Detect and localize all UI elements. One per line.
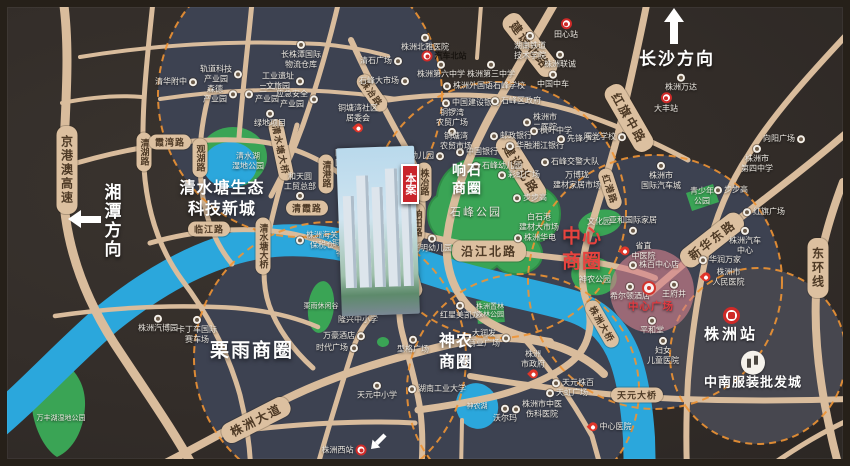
- road-label: 东环线: [808, 238, 829, 298]
- poi-marker-icon: [498, 171, 506, 179]
- poi-marker-icon: [699, 256, 707, 264]
- poi-text: 平和堂: [640, 326, 664, 336]
- poi-text: 大丰站: [654, 104, 678, 114]
- map-poi: 三一产业园: [245, 84, 279, 103]
- poi-text: 株洲市第四中学: [741, 154, 773, 173]
- poi-text: 步步高: [523, 193, 547, 203]
- poi-marker-icon: [670, 281, 678, 289]
- map-poi: 株洲市政府: [521, 349, 545, 378]
- poi-text: 中南服装批发城: [704, 376, 802, 392]
- poi-marker-icon: [193, 316, 201, 324]
- road-label: 清霞路: [286, 201, 328, 216]
- map-poi: 石峰大市场: [359, 76, 409, 86]
- poi-text: 汽车北站: [435, 51, 467, 61]
- poi-marker-icon: [490, 132, 498, 140]
- poi-text: 湖南工业大学: [418, 384, 466, 394]
- map-poi: 株洲万达: [665, 74, 697, 93]
- road-label: 清港路: [319, 155, 334, 194]
- road-label: 株洲大道: [218, 394, 293, 446]
- poi-marker-icon: [659, 337, 667, 345]
- poi-marker-icon: [657, 162, 665, 170]
- poi-marker-icon: [556, 51, 564, 59]
- poi-text: 光明幼儿园: [412, 244, 452, 254]
- poi-text: 和天圆工贸总部: [284, 172, 316, 191]
- map-poi: 神农公园: [579, 275, 611, 285]
- map-poi: 株洲市人民医院: [702, 267, 745, 286]
- map-poi: 青少年公园: [690, 186, 714, 205]
- map-poi: 天虹广场: [546, 388, 588, 398]
- poi-text: 铜塘湾社区居委会: [338, 103, 378, 122]
- poi-text: 青少年公园: [690, 186, 714, 205]
- poi-text: 彩虹广场: [508, 170, 540, 180]
- road-label: 清水塘大桥: [256, 218, 271, 275]
- poi-text: 石峰公园: [450, 205, 502, 218]
- map-poi: 中国中车: [537, 71, 569, 90]
- poi-text: 神农商圈: [439, 331, 473, 373]
- poi-marker-icon: [296, 236, 304, 244]
- poi-marker-icon: [296, 77, 304, 85]
- map-poi: 株洲华电: [514, 233, 556, 243]
- map-poi: 光明幼儿园: [412, 235, 452, 254]
- railway-station-icon: [561, 18, 572, 29]
- poi-text: 应急安全产业园: [276, 89, 308, 108]
- map-poi: 株洲第六中学: [417, 61, 465, 80]
- shopping-mall-icon: [741, 351, 765, 375]
- poi-marker-icon: [506, 142, 514, 150]
- poi-marker-icon: [350, 344, 358, 352]
- map-poi: 天元株百: [552, 378, 594, 388]
- poi-text: 石峰幼儿园: [482, 161, 522, 171]
- poi-text: 株洲联诚: [544, 60, 576, 70]
- hospital-pin-icon: [700, 271, 713, 284]
- map-poi: 省直中医院: [621, 241, 656, 260]
- poi-marker-icon: [677, 74, 685, 82]
- map-poi: 中南服装批发城: [704, 351, 802, 392]
- building-tower: [401, 196, 414, 286]
- poi-marker-icon: [310, 95, 318, 103]
- poi-marker-icon: [797, 135, 805, 143]
- map-poi: 清华附中: [155, 77, 197, 87]
- poi-text: 石峰大市场: [359, 76, 399, 86]
- map-poi: 株洲汽博园: [138, 315, 178, 334]
- map-poi: 邮政银行: [490, 131, 532, 141]
- poi-text: 红星美凯龙: [440, 311, 480, 321]
- building-tower: [371, 187, 385, 287]
- poi-text: 株洲市人民医院: [713, 267, 745, 286]
- poi-marker-icon: [526, 32, 534, 40]
- poi-text: 天元中小学: [357, 391, 397, 401]
- poi-marker-icon: [229, 90, 237, 98]
- poi-marker-icon: [513, 194, 521, 202]
- map-labels-layer: 京港澳高速清湖路霞湾路观湖路临江路清水塘大桥清水塘大桥清霞路清港路株冶路株冶路响…: [0, 0, 850, 466]
- poi-text: 省直中医院: [632, 241, 656, 260]
- poi-marker-icon: [501, 405, 509, 413]
- poi-text: 栗雨商圈: [210, 339, 294, 364]
- poi-text: 石峰交警大队: [551, 157, 599, 167]
- poi-marker-icon: [401, 77, 409, 85]
- poi-text: 华润万家: [709, 255, 741, 265]
- map-poi: 神农商圈: [439, 331, 473, 373]
- map-poi: 妇女儿童医院: [647, 337, 679, 365]
- map-poi: 田心站: [554, 18, 578, 40]
- map-poi: 中心医院: [589, 422, 632, 432]
- poi-text: 轨道科技产业园: [200, 64, 232, 83]
- poi-text: 株洲置林森林公园: [476, 303, 504, 320]
- poi-marker-icon: [245, 90, 253, 98]
- poi-text: 清华附中: [155, 77, 187, 87]
- map-poi: 株百中心店: [629, 260, 679, 270]
- poi-marker-icon: [552, 379, 560, 387]
- building-tower: [356, 175, 372, 287]
- poi-text: 邮政银行: [500, 131, 532, 141]
- poi-text: 株洲汽博园: [138, 324, 178, 334]
- map-poi: 华融湘江银行: [506, 141, 564, 151]
- map-poi: 栗雨商圈: [210, 339, 294, 364]
- poi-text: 株百中心店: [639, 260, 679, 270]
- map-poi: 平和堂: [640, 317, 664, 336]
- poi-text: 株洲外国语石峰学校: [453, 81, 525, 91]
- poi-marker-icon: [753, 145, 761, 153]
- map-poi: 中心广场: [628, 301, 674, 314]
- poi-marker-icon: [557, 135, 565, 143]
- poi-text: 王府井: [662, 290, 686, 300]
- poi-text: 株洲万达: [665, 83, 697, 93]
- road-label: 临江路: [188, 222, 230, 237]
- map-poi: 神农湖: [467, 402, 488, 410]
- poi-marker-icon: [296, 192, 304, 200]
- hospital-pin-icon: [587, 421, 600, 434]
- center-plaza-target-icon: [642, 281, 656, 295]
- map-poi: 绿地项目: [254, 110, 286, 129]
- poi-text: 清石广场: [360, 56, 392, 66]
- map-poi: 彩虹广场: [498, 170, 540, 180]
- map-poi: 栗雨休闲谷: [304, 302, 339, 310]
- map-poi: 铜塘湾农贸市场: [440, 131, 472, 150]
- map-poi: 应急安全产业园: [276, 89, 318, 108]
- poi-text: 神农湖: [467, 402, 488, 410]
- poi-marker-icon: [502, 334, 510, 342]
- map-poi: 步步高: [513, 193, 547, 203]
- map-poi: 株洲置林森林公园: [476, 303, 504, 320]
- poi-text: 清水塘生态科技新城: [179, 178, 264, 220]
- poi-text: 万博珑建材家居市场: [553, 170, 601, 189]
- poi-text: 万豪酒店: [323, 331, 355, 341]
- poi-marker-icon: [436, 152, 444, 160]
- map-poi: 长株潭国际物流仓库: [281, 41, 321, 69]
- poi-text: 株洲汽车中心: [729, 236, 761, 255]
- map-poi: 时代广场: [316, 343, 358, 353]
- poi-text: 神农公园: [579, 275, 611, 285]
- poi-text: 绿地项目: [254, 119, 286, 129]
- poi-marker-icon: [530, 127, 538, 135]
- map-poi: 万博珑建材家居市场: [553, 170, 601, 189]
- poi-marker-icon: [456, 302, 464, 310]
- poi-marker-icon: [189, 78, 197, 86]
- poi-marker-icon: [428, 235, 436, 243]
- poi-marker-icon: [443, 82, 451, 90]
- road-label: 京港澳高速: [57, 126, 78, 214]
- road-label: 株洲大桥: [583, 298, 622, 351]
- poi-marker-icon: [629, 261, 637, 269]
- road-label: 沿江北路: [452, 241, 526, 262]
- poi-marker-icon: [541, 158, 549, 166]
- main-station-icon: [722, 307, 739, 324]
- map-poi: 铜塘湾社区居委会: [338, 103, 378, 132]
- poi-marker-icon: [523, 118, 531, 126]
- map-poi: 中心商圈: [562, 224, 602, 273]
- poi-text: 天元株百: [562, 378, 594, 388]
- poi-text: 株洲第三中学: [467, 70, 515, 80]
- poi-marker-icon: [154, 315, 162, 323]
- poi-marker-icon: [618, 133, 626, 141]
- poi-text: 中心医院: [600, 422, 632, 432]
- map-poi: 株洲外国语石峰学校: [443, 81, 525, 91]
- poi-text: 中国中车: [537, 80, 569, 90]
- poi-text: 红旗广场: [753, 207, 785, 217]
- map-poi: 白石港建材大市场: [519, 212, 559, 231]
- poi-marker-icon: [546, 389, 554, 397]
- poi-text: 步步高: [724, 185, 748, 195]
- poi-text: 曙光学校: [584, 132, 616, 142]
- poi-marker-icon: [234, 70, 242, 78]
- map-poi: 响石商圈: [452, 162, 482, 198]
- poi-text: 株洲市国际汽车城: [641, 171, 681, 190]
- road-label: 天元大桥: [611, 388, 663, 403]
- map-poi: 株洲第三中学: [467, 61, 515, 80]
- building-tower: [343, 196, 357, 288]
- poi-text: 天虹广场: [556, 388, 588, 398]
- map-poi: 森德产业园: [203, 84, 237, 103]
- map-poi: 大润发商业广场: [468, 328, 510, 347]
- poi-marker-icon: [442, 99, 450, 107]
- map-poi: 湖南工业大学: [408, 384, 466, 394]
- poi-marker-icon: [266, 110, 274, 118]
- map-poi: 天元中小学: [357, 382, 397, 401]
- hospital-pin-icon: [352, 122, 365, 135]
- map-poi: 步步高: [714, 185, 748, 195]
- building-tower: [385, 168, 401, 286]
- zhuzhou-location-map: 本案 长沙方向 湘潭方向 京港澳高速清湖路霞湾路观湖路临江路清水塘大桥清水塘大桥…: [0, 0, 850, 466]
- poi-text: 长株潭国际物流仓库: [281, 50, 321, 69]
- poi-marker-icon: [549, 71, 557, 79]
- poi-text: 万丰湖湿地公园: [37, 414, 86, 422]
- poi-text: 亚和国际家居: [609, 216, 657, 226]
- poi-text: 白石港建材大市场: [519, 212, 559, 231]
- poi-marker-icon: [409, 336, 417, 344]
- poi-marker-icon: [741, 227, 749, 235]
- map-poi: 万豪酒店: [323, 331, 365, 341]
- poi-marker-icon: [437, 61, 445, 69]
- map-poi: 向阳广场: [763, 134, 805, 144]
- poi-marker-icon: [626, 283, 634, 291]
- map-poi: 石峰公园: [450, 205, 502, 218]
- poi-text: 田心站: [554, 30, 578, 40]
- map-poi: 株洲汽车中心: [729, 227, 761, 255]
- map-poi: 红星美凯龙: [440, 302, 480, 321]
- map-poi: 华润万家: [699, 255, 741, 265]
- poi-marker-icon: [487, 61, 495, 69]
- hospital-pin-icon: [527, 368, 540, 381]
- poi-text: 株洲华电: [524, 233, 556, 243]
- map-poi: 型格广场: [397, 336, 429, 355]
- poi-text: 湖南铁道技术学院: [514, 41, 546, 60]
- map-poi: 红旗广场: [743, 207, 785, 217]
- map-poi: 轨道科技产业园: [200, 64, 242, 83]
- map-poi: 万丰湖湿地公园: [37, 414, 86, 422]
- map-poi: 大丰站: [654, 92, 678, 114]
- poi-marker-icon: [648, 317, 656, 325]
- poi-marker-icon: [629, 226, 637, 234]
- poi-marker-icon: [421, 34, 429, 42]
- poi-marker-icon: [491, 97, 499, 105]
- railway-station-icon: [356, 445, 367, 456]
- poi-text: 株洲市政府: [521, 349, 545, 368]
- poi-marker-icon: [408, 385, 416, 393]
- poi-marker-icon: [297, 41, 305, 49]
- poi-marker-icon: [514, 234, 522, 242]
- poi-text: 栗雨休闲谷: [304, 302, 339, 310]
- poi-text: 铜锣湾农贸广场: [436, 108, 468, 127]
- map-poi: 清水湖湿地公园: [232, 151, 264, 170]
- road-label: 观湖路: [193, 139, 208, 178]
- poi-text: 株洲市中医伤科医院: [522, 399, 562, 418]
- poi-text: 时代广场: [316, 343, 348, 353]
- map-poi: 株洲市中医伤科医院: [512, 399, 562, 418]
- map-poi: 株洲市国际汽车城: [641, 162, 681, 190]
- poi-text: 株洲第六中学: [417, 70, 465, 80]
- map-poi: 石峰交警大队: [541, 157, 599, 167]
- map-poi: 曙光学校: [584, 132, 626, 142]
- map-poi: 株洲市第四中学: [741, 145, 773, 173]
- poi-text: 向阳广场: [763, 134, 795, 144]
- map-poi: 清石广场: [360, 56, 402, 66]
- poi-marker-icon: [373, 382, 381, 390]
- railway-station-icon: [661, 92, 672, 103]
- site-tag: 本案: [401, 164, 419, 204]
- map-poi: 湖南铁道技术学院: [514, 32, 546, 60]
- map-poi: 清水塘生态科技新城: [179, 178, 264, 220]
- hospital-pin-icon: [619, 245, 632, 258]
- map-poi: 亚和国际家居: [609, 216, 657, 235]
- poi-text: 清水湖湿地公园: [232, 151, 264, 170]
- poi-text: 中心商圈: [562, 224, 602, 273]
- map-poi: 王府井: [662, 281, 686, 300]
- poi-text: 株洲站: [704, 325, 758, 343]
- poi-text: 中心广场: [628, 301, 674, 314]
- map-poi: 株洲西站: [322, 445, 367, 456]
- map-poi: 和天圆工贸总部: [284, 172, 316, 200]
- poi-marker-icon: [714, 186, 722, 194]
- poi-marker-icon: [743, 208, 751, 216]
- poi-marker-icon: [512, 405, 520, 413]
- map-poi: 石峰区政府: [491, 96, 541, 106]
- poi-text: 型格广场: [397, 345, 429, 355]
- map-poi: [642, 281, 656, 295]
- road-label: 霞湾路: [149, 135, 191, 150]
- poi-text: 株洲西站: [322, 445, 354, 455]
- poi-marker-icon: [394, 57, 402, 65]
- map-poi: 株洲联诚: [544, 51, 576, 70]
- map-poi: 株洲北雅医院: [401, 34, 449, 53]
- map-poi: 株洲站: [704, 307, 758, 343]
- road-label: 红旗中路: [601, 81, 656, 156]
- poi-text: 妇女儿童医院: [647, 346, 679, 365]
- poi-text: 铜塘湾农贸市场: [440, 131, 472, 150]
- poi-text: 石峰区政府: [501, 96, 541, 106]
- poi-text: 森德产业园: [203, 84, 227, 103]
- poi-text: 响石商圈: [452, 162, 482, 198]
- poi-marker-icon: [357, 332, 365, 340]
